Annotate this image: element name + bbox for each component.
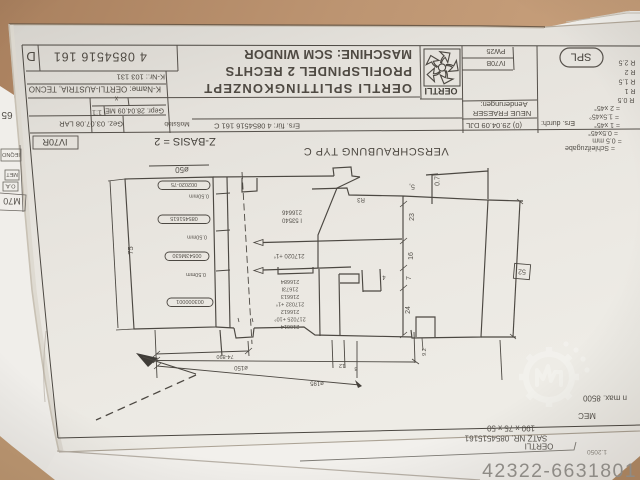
svg-text:42322-6631801: 42322-6631801 [482, 460, 637, 480]
